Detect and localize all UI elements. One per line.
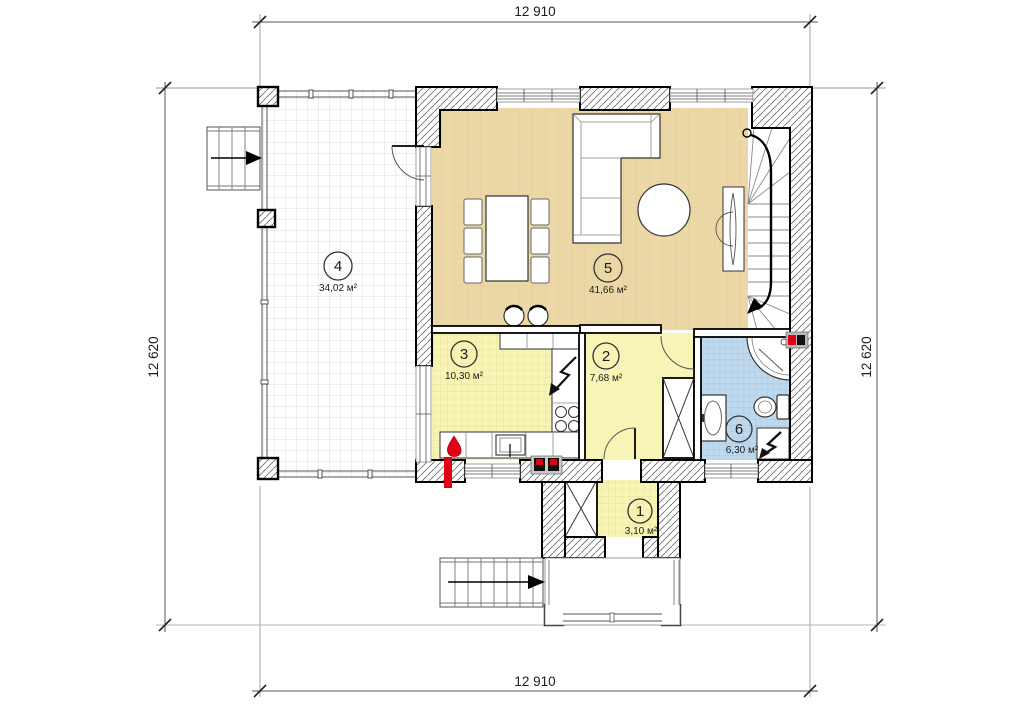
- window-bathroom-bottom: [705, 464, 758, 478]
- room-area: 6,30 м²: [726, 445, 759, 456]
- room-number: 2: [602, 348, 610, 365]
- wall-bottom-a: [416, 460, 465, 482]
- terrace-column: [258, 210, 275, 227]
- window-kitchen-bottom: [465, 464, 520, 478]
- dimension-left-value: 12 620: [146, 336, 161, 377]
- round-table: [638, 184, 690, 236]
- dimension-left: 12 620: [146, 82, 171, 632]
- tambour-wall-left: [542, 482, 565, 558]
- dimension-bottom: 12 910: [252, 674, 818, 697]
- toilet: [754, 395, 789, 419]
- dimension-top: 12 910: [252, 4, 818, 28]
- room-area: 7,68 м²: [590, 373, 623, 384]
- partition-living-hall: [580, 325, 661, 333]
- partition-hall-bathroom: [694, 337, 701, 460]
- room-area: 3,10 м²: [625, 526, 658, 537]
- partition-living-kitchen: [432, 326, 580, 333]
- electric-panel: [757, 428, 789, 459]
- porch-outside-stairs: [440, 558, 545, 607]
- partition-kitchen-hall: [579, 333, 585, 460]
- window-top-2: [670, 89, 753, 102]
- kitchen-sink: [496, 435, 525, 457]
- dimension-right-value: 12 620: [859, 336, 874, 377]
- meter-kitchen: [531, 456, 562, 474]
- tambour-wall-bottom-left: [565, 537, 605, 558]
- room-number: 3: [460, 346, 468, 363]
- room-area: 34,02 м²: [319, 283, 358, 294]
- floor-plan-page: 12 910 12 910 12 620 12 620: [0, 0, 1024, 724]
- meter-bathroom: [786, 332, 808, 348]
- terrace-column: [258, 458, 278, 479]
- room-number: 6: [735, 421, 743, 438]
- tambour-wall-right: [658, 482, 680, 558]
- window-kitchen-left: [416, 366, 431, 462]
- dimension-bottom-value: 12 910: [514, 674, 555, 689]
- washbasin: [699, 395, 726, 441]
- window-top-1: [497, 89, 580, 102]
- floor-plan-drawing: 12 910 12 910 12 620 12 620: [0, 0, 1024, 724]
- room-number: 1: [636, 503, 644, 520]
- room-area: 41,66 м²: [589, 285, 628, 296]
- dimension-top-value: 12 910: [514, 4, 555, 19]
- dimension-right: 12 620: [859, 82, 883, 632]
- room-number: 5: [604, 260, 612, 277]
- porch: [545, 558, 680, 625]
- room-number: 4: [334, 258, 342, 275]
- terrace-column: [258, 87, 278, 106]
- tambour-wall-bottom-right: [643, 537, 658, 558]
- wall-bottom-d: [758, 460, 812, 482]
- terrace-outside-stairs: [207, 127, 262, 190]
- gas-riser-mark: [444, 457, 452, 488]
- partition-living-bathroom: [694, 329, 790, 337]
- room-area: 10,30 м²: [445, 371, 484, 382]
- wall-bottom-c: [641, 460, 705, 482]
- terrace-door-glazing: [416, 147, 431, 206]
- wall-top-middle: [580, 87, 670, 110]
- wall-left-middle: [416, 206, 432, 366]
- dining-table: [486, 196, 528, 281]
